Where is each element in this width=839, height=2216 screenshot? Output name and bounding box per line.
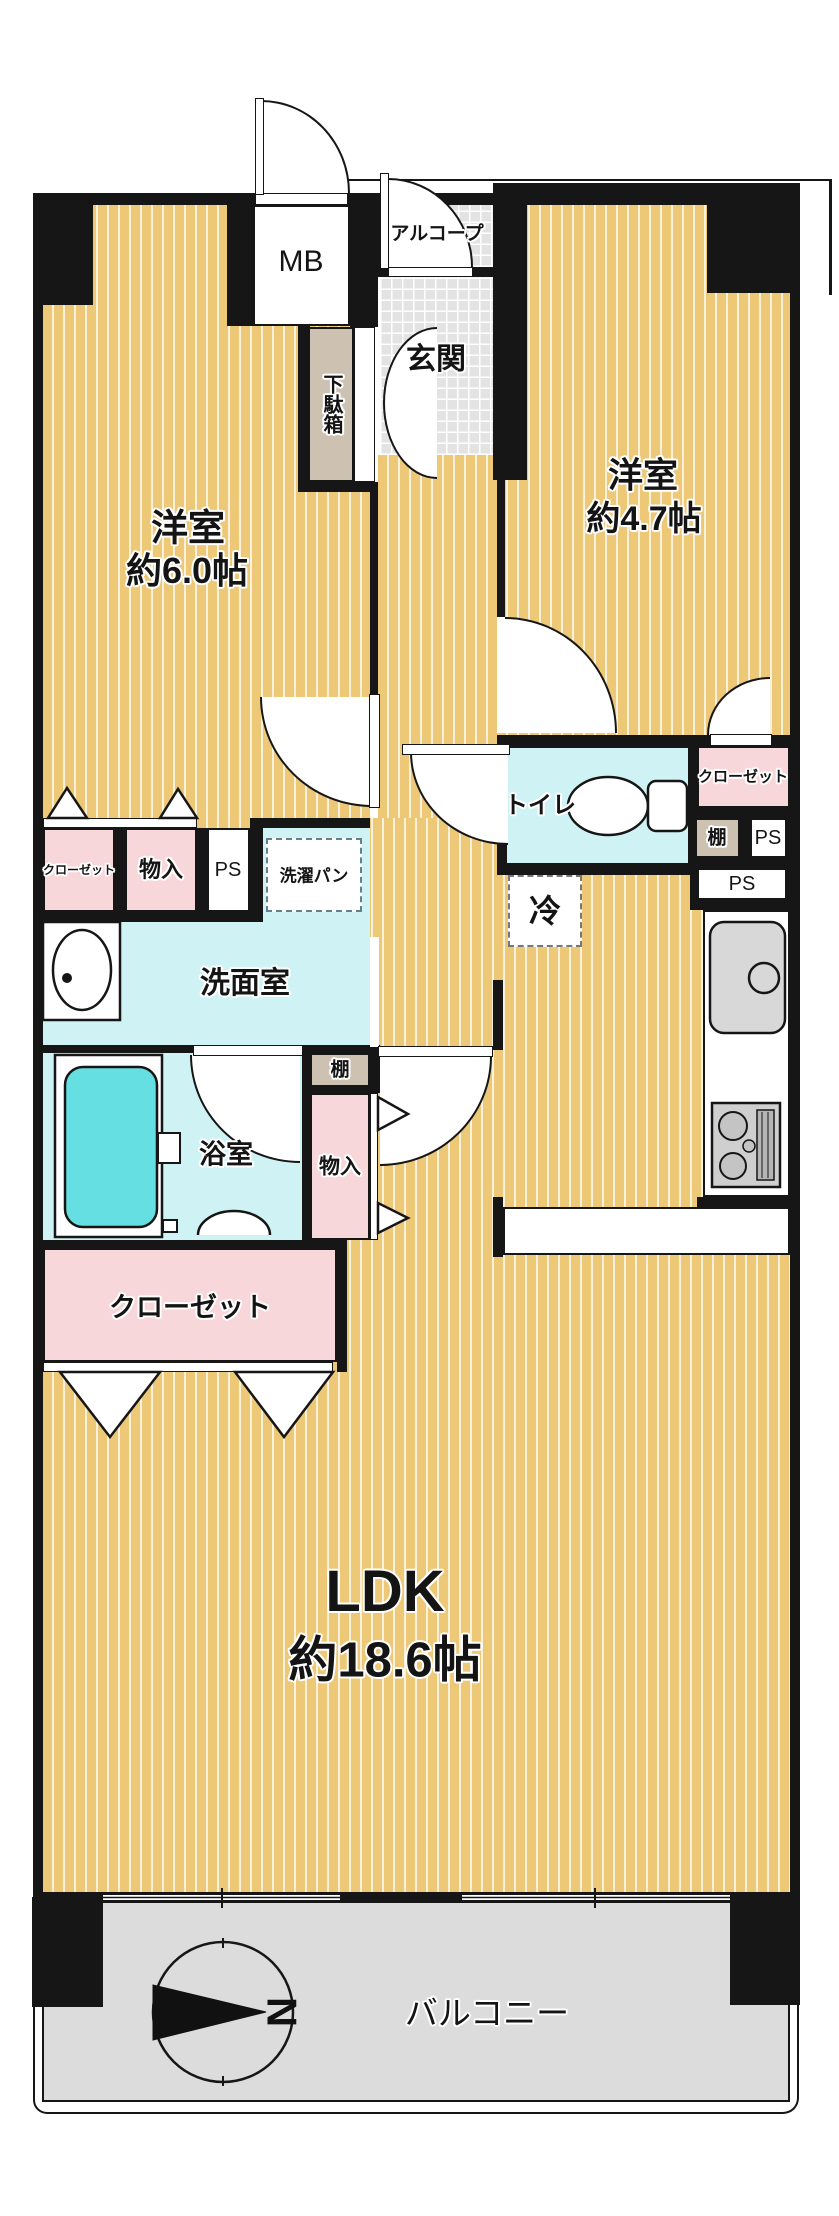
wall-segment [302, 1053, 310, 1240]
ps-left-label: PS [215, 860, 242, 880]
ps-right-lower-label: PS [729, 874, 756, 894]
wall-segment [790, 193, 800, 2005]
bathroom-label: 浴室 [199, 1142, 253, 1169]
wall-segment [33, 1240, 347, 1248]
laundry-pan-label: 洗濯パン [280, 868, 349, 885]
wall-segment [115, 828, 125, 912]
closet-right-door-leaf [710, 734, 772, 746]
bathroom-door-leaf [193, 1045, 303, 1056]
entrance-door-sill [388, 267, 473, 277]
wall-segment [707, 193, 793, 293]
shoe-cabinet-door [354, 327, 375, 482]
alcove-label: アルコープ [390, 225, 483, 244]
window-sliding [462, 1893, 730, 1902]
window-sliding [103, 1893, 340, 1902]
wall-segment [497, 865, 697, 875]
bedroom1-size-label: 約6.0帖 [126, 553, 248, 589]
genkan-label: 玄関 [406, 345, 466, 375]
bedroom2-name-label: 洋室 [608, 459, 678, 494]
closet-left-doorline [43, 818, 197, 828]
wall-segment [250, 818, 263, 922]
wall-segment [497, 480, 505, 617]
bedroom1-name-label: 洋室 [151, 510, 225, 547]
mb-door-strip [255, 193, 348, 205]
shelf-bath-label: 棚 [330, 1061, 349, 1080]
wall-segment [493, 193, 527, 480]
wall-segment [730, 1893, 800, 2005]
wall-segment [370, 483, 378, 695]
kitchen-counter [503, 1207, 790, 1255]
washroom-label: 洗面室 [200, 969, 290, 999]
entrance-door-swing [388, 178, 473, 267]
closet-right-label: クローゼット [698, 770, 788, 785]
toilet-label: トイレ [504, 794, 576, 818]
mb-door-swing [261, 100, 350, 193]
wall-segment [33, 912, 263, 922]
kitchen-unit [703, 910, 790, 1197]
wall-segment [493, 980, 503, 1050]
ldk-name-label: LDK [325, 1563, 444, 1621]
wall-segment [337, 1248, 347, 1372]
balcony-label: バルコニー [405, 1997, 569, 2030]
fridge-label: 冷 [529, 895, 561, 927]
wall-segment [227, 193, 253, 326]
wall-segment [32, 1897, 103, 2007]
washroom-door-leaf [369, 694, 380, 808]
shoe-cabinet-label: 下駄箱 [321, 374, 341, 434]
ldk-door-leaf [378, 1046, 493, 1057]
toilet-door-leaf [402, 744, 510, 755]
wall-segment [197, 828, 207, 912]
ps-right-upper-label: PS [755, 828, 782, 848]
shelf-right-label: 棚 [707, 829, 726, 848]
wall-segment [350, 193, 380, 267]
bedroom2-size-label: 約4.7帖 [586, 502, 701, 536]
wall-segment [493, 183, 800, 193]
mb-door-leaf [255, 98, 264, 195]
entrance-door-leaf [380, 173, 389, 269]
wall-segment [350, 267, 378, 327]
storage-left-label: 物入 [139, 859, 183, 881]
ldk-size-label: 約18.6帖 [288, 1637, 481, 1686]
doorway-gap [370, 937, 379, 1047]
closet-bottom-label: クローゼット [109, 1295, 271, 1322]
mb-label: MB [279, 247, 324, 277]
wall-segment [308, 482, 378, 492]
wall-segment [250, 818, 370, 828]
outline-line [829, 179, 832, 295]
wall-segment [697, 1197, 793, 1207]
wall-segment [33, 193, 43, 1903]
closet-left-label: クローゼット [43, 864, 115, 876]
storage-bath-label: 物入 [319, 1157, 361, 1178]
floorplan-root: N MB アルコープ 玄関 下駄箱 洋室 約6.0帖 洋室 約4.7帖 トイレ … [0, 0, 839, 2216]
wall-segment [473, 267, 493, 277]
closet-bottom-doorline [43, 1362, 333, 1372]
outline-line [345, 179, 831, 181]
storage-bath-doorline [370, 1093, 378, 1240]
wall-segment [497, 735, 710, 746]
wall-segment [493, 1197, 503, 1257]
